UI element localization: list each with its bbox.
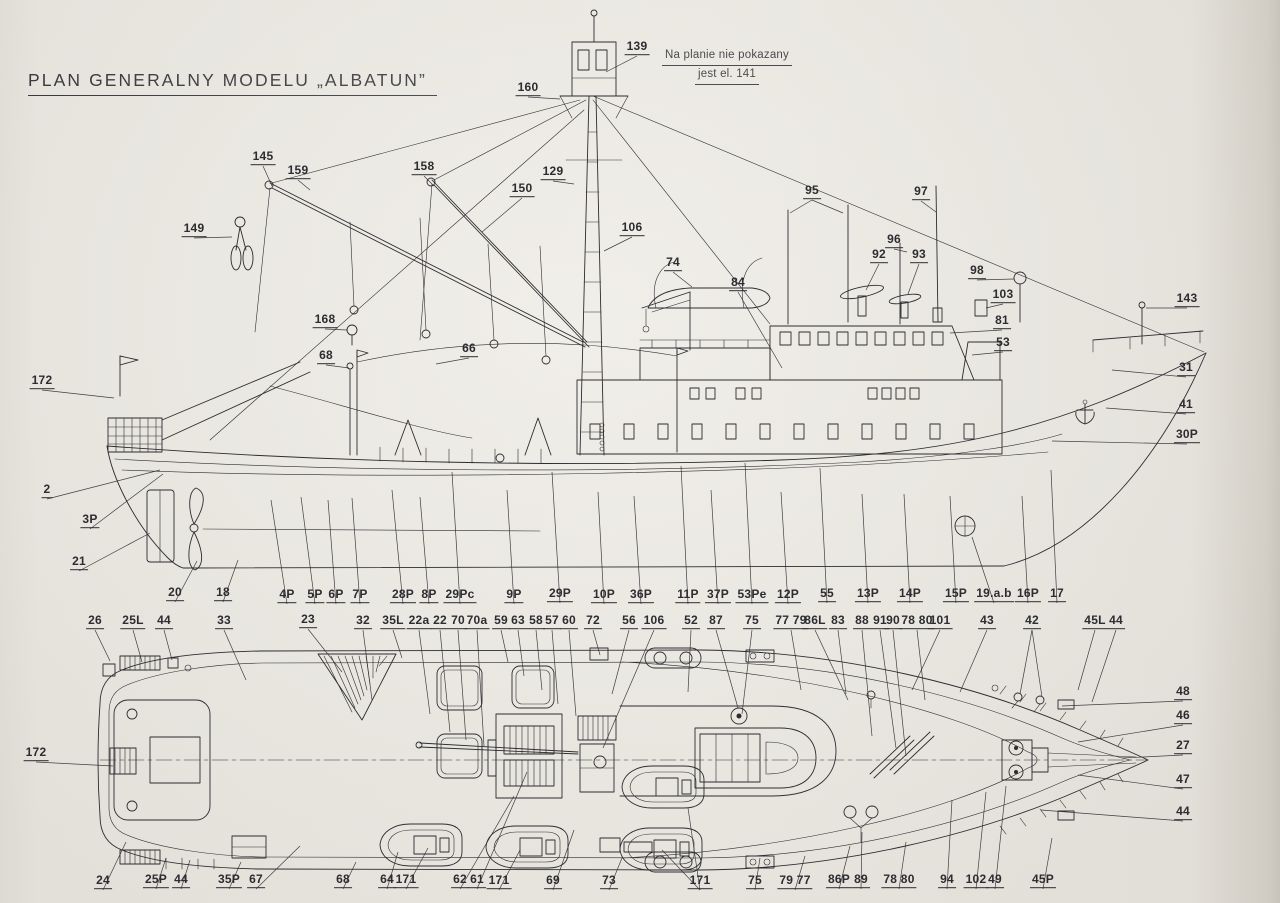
callout-label: 61	[468, 872, 486, 888]
callout-label: 84	[729, 275, 747, 291]
callout-label: 75	[743, 613, 761, 629]
callout-label: 86P	[826, 872, 852, 888]
callout-label: 20	[166, 585, 184, 601]
callout-label: 30P	[1174, 427, 1200, 443]
callout-label: 28P	[390, 587, 416, 603]
callout-label: 94	[938, 872, 956, 888]
callout-label: 8P	[419, 587, 438, 603]
callout-label: 70a	[465, 613, 490, 629]
callout-label: 143	[1175, 291, 1200, 307]
callout-label: 44	[155, 613, 173, 629]
callout-label: 83	[829, 613, 847, 629]
callout-label: 13P	[855, 586, 881, 602]
callout-label: 66	[460, 341, 478, 357]
callout-label: 31	[1177, 360, 1195, 376]
callout-label: 36P	[628, 587, 654, 603]
callout-label: 59	[492, 613, 510, 629]
callout-label: 15P	[943, 586, 969, 602]
callout-label: 17	[1048, 586, 1066, 602]
callout-label: 10P	[591, 587, 617, 603]
callout-label: 33	[215, 613, 233, 629]
callout-label: 96	[885, 232, 903, 248]
callout-label: 171	[487, 873, 512, 889]
scanned-plan-page: { "page": { "title": "PLAN GENERALNY MOD…	[0, 0, 1280, 903]
callout-label: 145	[251, 149, 276, 165]
callout-label: 6P	[326, 587, 345, 603]
callout-label: 102	[964, 872, 989, 888]
callout-label: 53Pe	[735, 587, 768, 603]
callout-label: 171	[688, 873, 713, 889]
callout-label: 25P	[143, 872, 169, 888]
callout-label: 86L	[802, 613, 827, 629]
callout-label: 139	[625, 39, 650, 55]
callout-label: 43	[978, 613, 996, 629]
callout-label-layer: 1391601451591581501291491061687484959796…	[0, 0, 1280, 903]
callout-label: 68	[317, 348, 335, 364]
callout-label: 45P	[1030, 872, 1056, 888]
callout-label: 72	[584, 613, 602, 629]
callout-label: 62	[451, 872, 469, 888]
callout-label: 22	[431, 613, 449, 629]
callout-label: 149	[182, 221, 207, 237]
callout-label: 92	[870, 247, 888, 263]
callout-label: 14P	[897, 586, 923, 602]
callout-label: 29P	[547, 586, 573, 602]
callout-label: 12P	[775, 587, 801, 603]
callout-label: 172	[24, 745, 49, 761]
callout-label: 172	[30, 373, 55, 389]
callout-label: 103	[991, 287, 1016, 303]
callout-label: 25L	[120, 613, 145, 629]
callout-label: 49	[986, 872, 1004, 888]
callout-label: 37P	[705, 587, 731, 603]
callout-label: 44	[172, 872, 190, 888]
callout-label: 79 77	[777, 873, 812, 889]
callout-label: 159	[286, 163, 311, 179]
callout-label: 46	[1174, 708, 1192, 724]
callout-label: 68	[334, 872, 352, 888]
callout-label: 78 80	[881, 872, 916, 888]
callout-label: 5P	[305, 587, 324, 603]
callout-label: 35L	[380, 613, 405, 629]
callout-label: 22a	[407, 613, 432, 629]
callout-label: 9P	[504, 587, 523, 603]
callout-label: 47	[1174, 772, 1192, 788]
callout-label: 55	[818, 586, 836, 602]
callout-label: 29Pc	[443, 587, 476, 603]
callout-label: 57	[543, 613, 561, 629]
callout-label: 95	[803, 183, 821, 199]
callout-label: 101	[928, 613, 953, 629]
callout-label: 171	[394, 872, 419, 888]
callout-label: 3P	[80, 512, 99, 528]
callout-label: 53	[994, 335, 1012, 351]
callout-label: 168	[313, 312, 338, 328]
callout-label: 16P	[1015, 586, 1041, 602]
callout-label: 7P	[350, 587, 369, 603]
callout-label: 2	[42, 482, 53, 498]
callout-label: 41	[1177, 397, 1195, 413]
callout-label: 73	[600, 873, 618, 889]
callout-label: 26	[86, 613, 104, 629]
callout-label: 44	[1174, 804, 1192, 820]
callout-label: 63	[509, 613, 527, 629]
callout-label: 87	[707, 613, 725, 629]
callout-label: 98	[968, 263, 986, 279]
callout-label: 106	[642, 613, 667, 629]
callout-label: 129	[541, 164, 566, 180]
callout-label: 11P	[675, 587, 700, 603]
callout-label: 24	[94, 873, 112, 889]
callout-label: 18	[214, 585, 232, 601]
callout-label: 160	[516, 80, 541, 96]
callout-label: 89	[852, 872, 870, 888]
callout-label: 150	[510, 181, 535, 197]
callout-label: 60	[560, 613, 578, 629]
callout-label: 19.a.b	[974, 586, 1014, 602]
callout-label: 67	[247, 872, 265, 888]
callout-label: 69	[544, 873, 562, 889]
callout-label: 88	[853, 613, 871, 629]
callout-label: 35P	[216, 872, 242, 888]
callout-label: 158	[412, 159, 437, 175]
callout-label: 32	[354, 613, 372, 629]
callout-label: 106	[620, 220, 645, 236]
callout-label: 48	[1174, 684, 1192, 700]
callout-label: 23	[299, 612, 317, 628]
callout-label: 56	[620, 613, 638, 629]
callout-label: 45L	[1082, 613, 1107, 629]
callout-label: 52	[682, 613, 700, 629]
callout-label: 4P	[277, 587, 296, 603]
callout-label: 75	[746, 873, 764, 889]
callout-label: 81	[993, 313, 1011, 329]
callout-label: 42	[1023, 613, 1041, 629]
callout-label: 97	[912, 184, 930, 200]
callout-label: 93	[910, 247, 928, 263]
callout-label: 44	[1107, 613, 1125, 629]
callout-label: 27	[1174, 738, 1192, 754]
callout-label: 74	[664, 255, 682, 271]
callout-label: 21	[70, 554, 88, 570]
